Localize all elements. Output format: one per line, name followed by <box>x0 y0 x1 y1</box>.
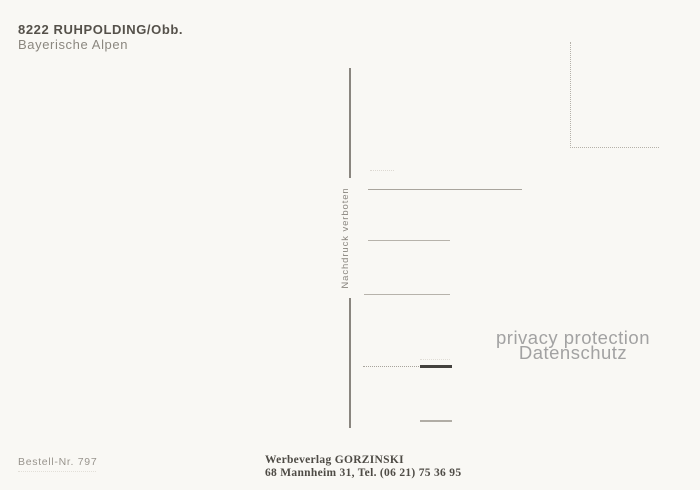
address-line <box>368 240 450 241</box>
address-line-dotted <box>363 366 421 367</box>
postcard-subtitle: Bayerische Alpen <box>18 37 128 52</box>
address-line <box>368 189 522 190</box>
order-number: Bestell-Nr. 797 <box>18 456 97 468</box>
publisher-name: Werbeverlag GORZINSKI <box>265 454 461 467</box>
stamp-box <box>570 42 659 148</box>
copyright-notice: Nachdruck verboten <box>340 183 352 293</box>
address-line-artifact <box>420 359 450 360</box>
address-line <box>364 294 450 295</box>
footer-artifact-line <box>18 471 96 472</box>
publisher-address: 68 Mannheim 31, Tel. (06 21) 75 36 95 <box>265 467 461 480</box>
address-line-short <box>420 420 452 422</box>
publisher-imprint: Werbeverlag GORZINSKI 68 Mannheim 31, Te… <box>265 454 461 480</box>
postal-code-bar <box>420 365 452 369</box>
postcard-title: 8222 RUHPOLDING/Obb. <box>18 22 183 37</box>
divider-line-lower <box>349 298 351 428</box>
privacy-watermark: privacy protection Datenschutz <box>488 330 658 360</box>
address-line-artifact <box>370 170 394 171</box>
divider-line-upper <box>349 68 351 178</box>
postcard-back: 8222 RUHPOLDING/Obb. Bayerische Alpen Na… <box>0 0 700 490</box>
